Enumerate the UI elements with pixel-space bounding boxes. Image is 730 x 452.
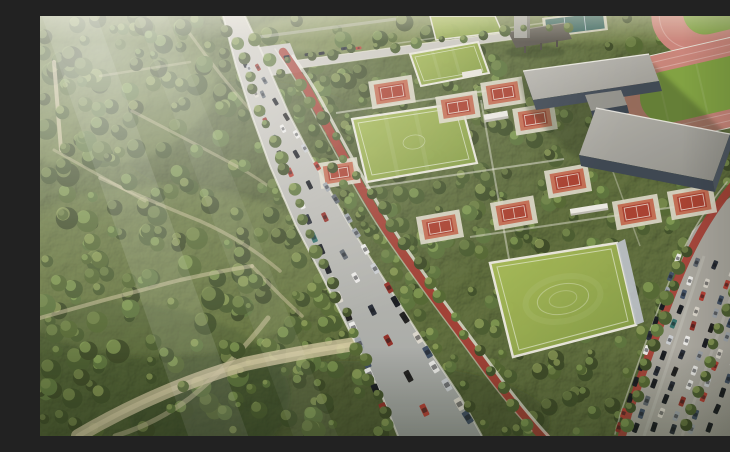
warm-cast	[40, 16, 730, 436]
park-scene	[40, 16, 730, 436]
aerial-render: Aerial 3D architectural rendering of a w…	[40, 16, 730, 436]
atmosphere	[40, 16, 730, 436]
